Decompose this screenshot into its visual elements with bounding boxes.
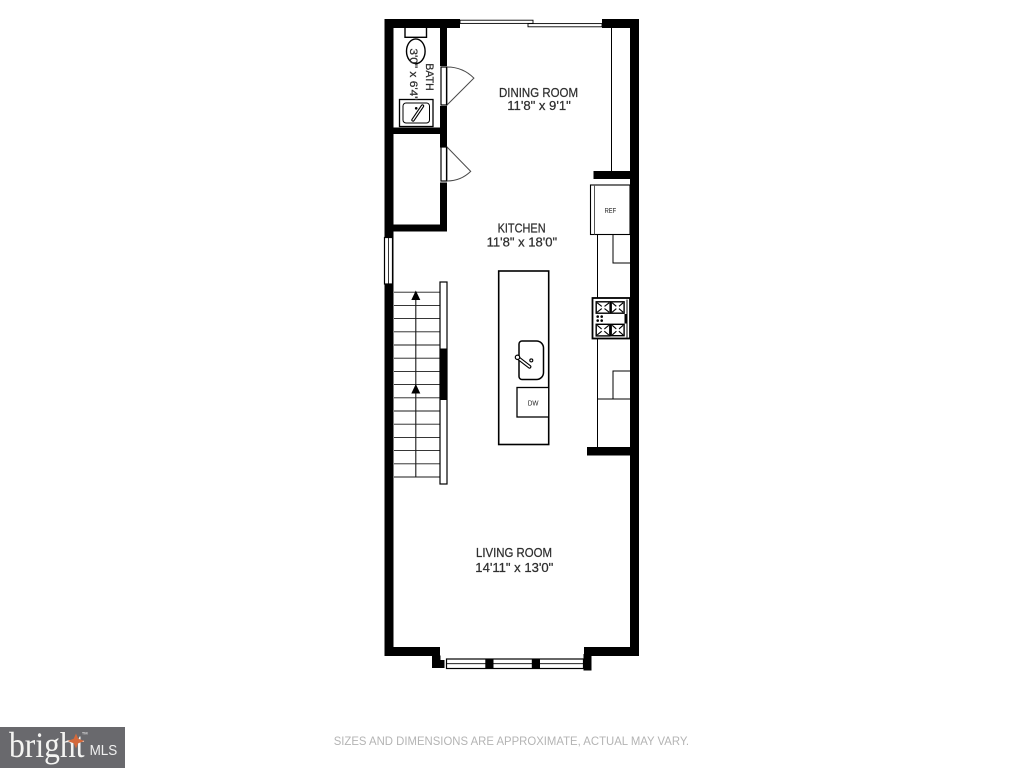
svg-text:SIZES AND DIMENSIONS ARE APPRO: SIZES AND DIMENSIONS ARE APPROXIMATE, AC… [334,734,689,748]
svg-text:REF: REF [605,208,617,215]
svg-text:BATH: BATH [423,63,435,91]
svg-text:3'0" x 6'4": 3'0" x 6'4" [407,48,419,100]
svg-text:™: ™ [82,732,89,739]
svg-text:LIVING ROOM: LIVING ROOM [476,545,552,560]
svg-text:MLS: MLS [90,743,118,759]
svg-text:11'8" x 9'1": 11'8" x 9'1" [507,98,571,113]
svg-text:11'8" x 18'0": 11'8" x 18'0" [487,235,558,250]
svg-text:KITCHEN: KITCHEN [498,221,546,236]
svg-text:14'11" x 13'0": 14'11" x 13'0" [475,560,553,575]
svg-text:DW: DW [528,401,539,408]
svg-text:bright: bright [9,725,85,765]
